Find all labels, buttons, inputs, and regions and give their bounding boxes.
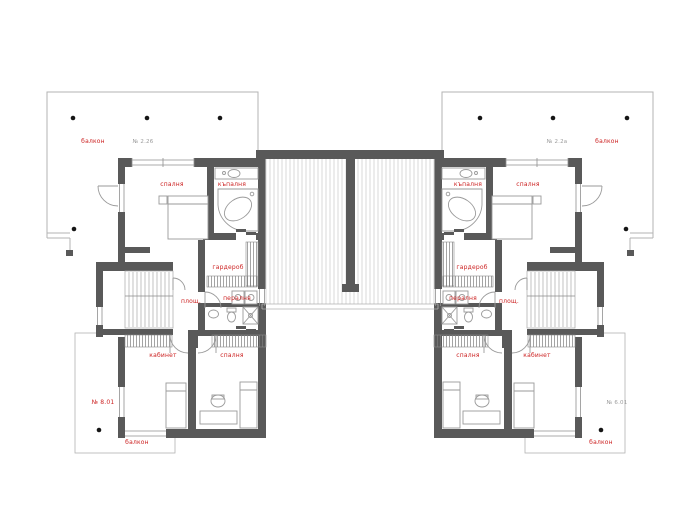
label-bedroom2-right: спалня	[456, 352, 480, 359]
label-bedroom-left: спалня	[160, 181, 184, 188]
label-balcony-top-left: балкон	[81, 138, 105, 145]
unit-right	[434, 92, 653, 453]
label-wardrobe-right: гардероб	[456, 264, 487, 271]
label-balcony-top-right: балкон	[595, 138, 619, 145]
court-top-wall	[256, 150, 444, 159]
label-balcony-bottom-right: балкон	[589, 439, 613, 446]
central-court	[256, 150, 444, 309]
floor-plan-page: балкон № 2.26 спалня къпалня гардероб пе…	[0, 0, 700, 525]
label-laundry-right: пералня	[449, 295, 477, 302]
party-wall-cap	[342, 284, 359, 292]
label-laundry-left: пералня	[223, 295, 251, 302]
label-wardrobe-left: гардероб	[212, 264, 243, 271]
party-wall-stub	[346, 159, 355, 286]
label-area-top-right: № 2.2а	[547, 139, 568, 145]
label-area-bottom-right: № 6.01	[607, 400, 628, 406]
label-bedroom2-left: спалня	[220, 352, 244, 359]
label-balcony-bottom-left: балкон	[125, 439, 149, 446]
label-bath-right: къпалня	[454, 181, 482, 188]
label-area-bottom-left: № 8.01	[92, 399, 115, 406]
label-office-right: кабинет	[523, 352, 551, 359]
label-area-top-left: № 2.26	[133, 139, 154, 145]
label-office-left: кабинет	[149, 352, 177, 359]
floor-plan-drawing: балкон № 2.26 спалня къпалня гардероб пе…	[0, 0, 700, 525]
unit-left	[47, 92, 266, 453]
label-bedroom-right: спалня	[516, 181, 540, 188]
label-bath-left: къпалня	[218, 181, 246, 188]
label-landing-right: площ.	[499, 298, 519, 305]
label-landing-left: площ.	[181, 298, 201, 305]
